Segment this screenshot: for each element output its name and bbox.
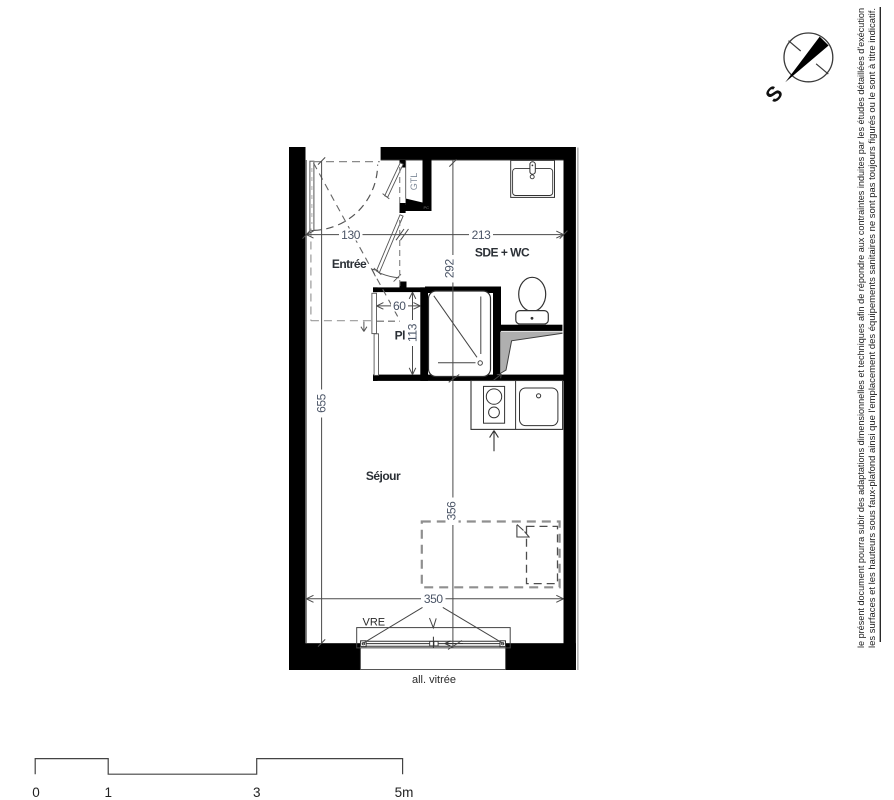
svg-text:113: 113 [406, 323, 420, 342]
svg-text:le présent document pourra sub: le présent document pourra subir des ada… [856, 8, 866, 648]
svg-text:SDE + WC: SDE + WC [475, 246, 530, 260]
svg-text:350: 350 [424, 592, 444, 606]
svg-text:655: 655 [315, 393, 329, 413]
svg-text:356: 356 [445, 501, 459, 521]
svg-text:292: 292 [443, 259, 457, 279]
svg-text:GTL: GTL [409, 173, 419, 191]
svg-text:5m: 5m [395, 785, 414, 800]
svg-text:60: 60 [393, 299, 406, 313]
svg-text:1: 1 [104, 785, 112, 800]
svg-text:Pl: Pl [395, 329, 406, 343]
svg-text:3: 3 [253, 785, 261, 800]
svg-text:213: 213 [472, 228, 492, 242]
svg-text:PC: PC [424, 205, 430, 210]
svg-text:Séjour: Séjour [366, 469, 401, 483]
svg-text:0: 0 [32, 785, 40, 800]
svg-text:VRE: VRE [363, 617, 386, 629]
svg-text:Entrée: Entrée [332, 257, 367, 271]
svg-text:130: 130 [341, 228, 361, 242]
svg-text:all. vitrée: all. vitrée [412, 674, 456, 686]
svg-text:les surfaces et les hauteurs s: les surfaces et les hauteurs sous faux-p… [867, 8, 877, 648]
